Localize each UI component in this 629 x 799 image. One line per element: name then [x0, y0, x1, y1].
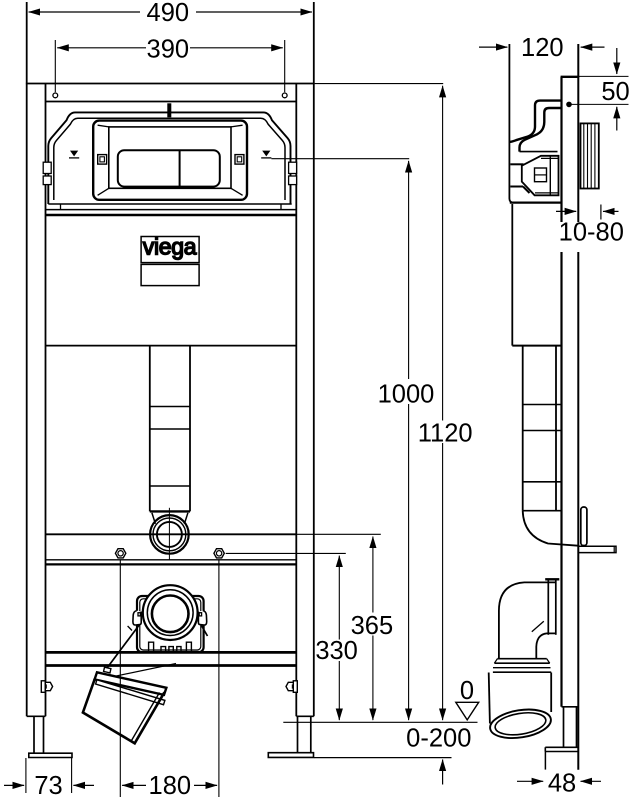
- svg-text:180: 180: [149, 772, 192, 799]
- svg-text:73: 73: [34, 772, 62, 799]
- svg-text:10-80: 10-80: [559, 219, 624, 247]
- svg-text:50: 50: [601, 78, 629, 106]
- svg-text:viega: viega: [143, 234, 197, 260]
- svg-text:1000: 1000: [378, 381, 435, 409]
- svg-text:48: 48: [548, 770, 576, 798]
- svg-text:365: 365: [351, 612, 394, 640]
- svg-text:390: 390: [147, 36, 190, 64]
- svg-text:1120: 1120: [418, 419, 473, 447]
- svg-text:0: 0: [460, 677, 474, 705]
- svg-text:490: 490: [147, 0, 190, 27]
- svg-text:0-200: 0-200: [406, 725, 471, 753]
- svg-text:330: 330: [315, 637, 358, 665]
- svg-text:120: 120: [521, 34, 564, 62]
